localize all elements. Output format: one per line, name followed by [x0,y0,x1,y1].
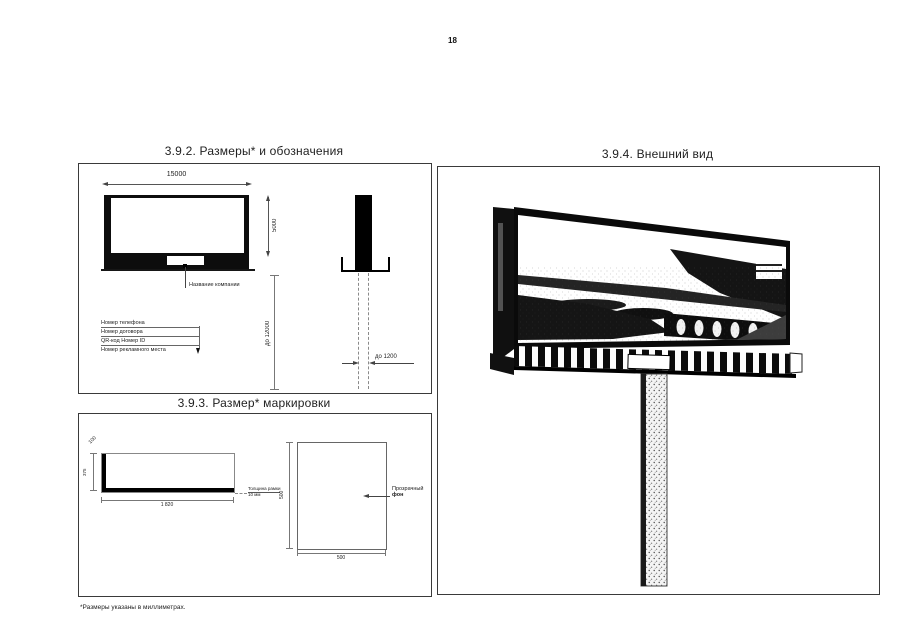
transparent-bg-label: Прозрачный фон [392,486,423,498]
arrow-up-icon [266,195,270,201]
dimension-line [297,553,385,554]
dimension-tick [90,490,97,491]
leader-line [185,267,186,288]
dim-square-width-label: 500 [297,555,385,561]
dim-pole-width-label: до 1200 [375,354,397,361]
plate-edge [102,488,234,492]
dimension-tick [233,497,234,503]
legend-list: Номер телефона Номер договора QR-код Ном… [101,319,199,354]
side-bracket [341,257,343,272]
drawing-box-marking: 100 375 1 820 Толщина рамки 10 мм 500 50… [78,413,432,597]
billboard-picture [514,211,790,347]
dim-square-height-label: 500 [279,477,285,513]
dimension-tick [286,442,293,443]
transparent-bg-line2: фон [392,492,423,498]
arrow-down-icon [266,251,270,257]
legend-item: Номер рекламного места [101,346,199,354]
section-title-sizes: 3.9.2. Размеры* и обозначения [78,144,430,158]
section-title-appearance: 3.9.4. Внешний вид [437,147,878,161]
dim-pole-height-label: до 12000 [265,302,271,364]
dim-width-label: 15000 [105,171,248,178]
drawing-box-sizes: 15000 5000 Название компании Номер телеф… [78,163,432,394]
billboard-shadow [101,269,255,271]
strip-plate [628,354,670,369]
page-number: 18 [0,36,905,45]
dimension-tick [270,275,279,276]
side-bracket [341,270,390,272]
plate-edge [102,454,106,492]
billboard-screen [111,198,244,253]
side-bracket [388,257,390,272]
dimension-tick [286,548,293,549]
leader-line [235,493,247,494]
legend-item: QR-код Номер ID [101,337,199,346]
dim-height-label: 5000 [272,197,278,254]
arrow-right-icon [246,182,252,186]
pole-centerline [368,273,369,389]
dimension-line [105,184,248,185]
dimension-line [274,275,275,390]
marking-plate [101,453,235,493]
legend-connector-line [199,326,200,348]
frame-note-line2: 10 мм [248,493,280,498]
dim-plate-width-label: 1 820 [101,502,233,508]
document-page: 18 3.9.2. Размеры* и обозначения 15000 5… [0,0,905,640]
dimension-line [374,363,414,364]
footnote: *Размеры указаны в миллиметрах. [80,604,186,611]
dimension-line [268,197,269,254]
section-title-marking: 3.9.3. Размер* маркировки [78,396,430,410]
billboard-side-view [355,195,372,271]
dimension-tick [90,453,97,454]
arrow-left-icon [363,494,369,498]
dim-plate-height-label: 375 [82,458,87,486]
dimension-line [289,442,290,548]
legend-item: Номер телефона [101,319,199,328]
dim-depth-label: 100 [88,436,98,446]
dimension-tick [385,550,386,556]
left-bracket [490,353,514,375]
dimension-tick [270,389,279,390]
dimension-line [93,453,94,491]
drawing-box-appearance [437,166,880,595]
billboard-front-view [104,195,249,269]
arrow-left-icon [102,182,108,186]
arrow-right-icon [353,361,359,365]
right-bracket [790,353,802,373]
billboard-side-panel [493,207,514,365]
arrow-down-icon [196,348,200,354]
pole-centerline [358,273,359,389]
billboard-pole [641,374,667,586]
legend-item: Номер договора [101,328,199,337]
billboard-illustration [438,167,877,592]
leader-line [366,496,390,497]
frame-note: Толщина рамки 10 мм [248,487,280,498]
plate-label: Название компании [189,282,240,288]
dimension-line [101,500,233,501]
